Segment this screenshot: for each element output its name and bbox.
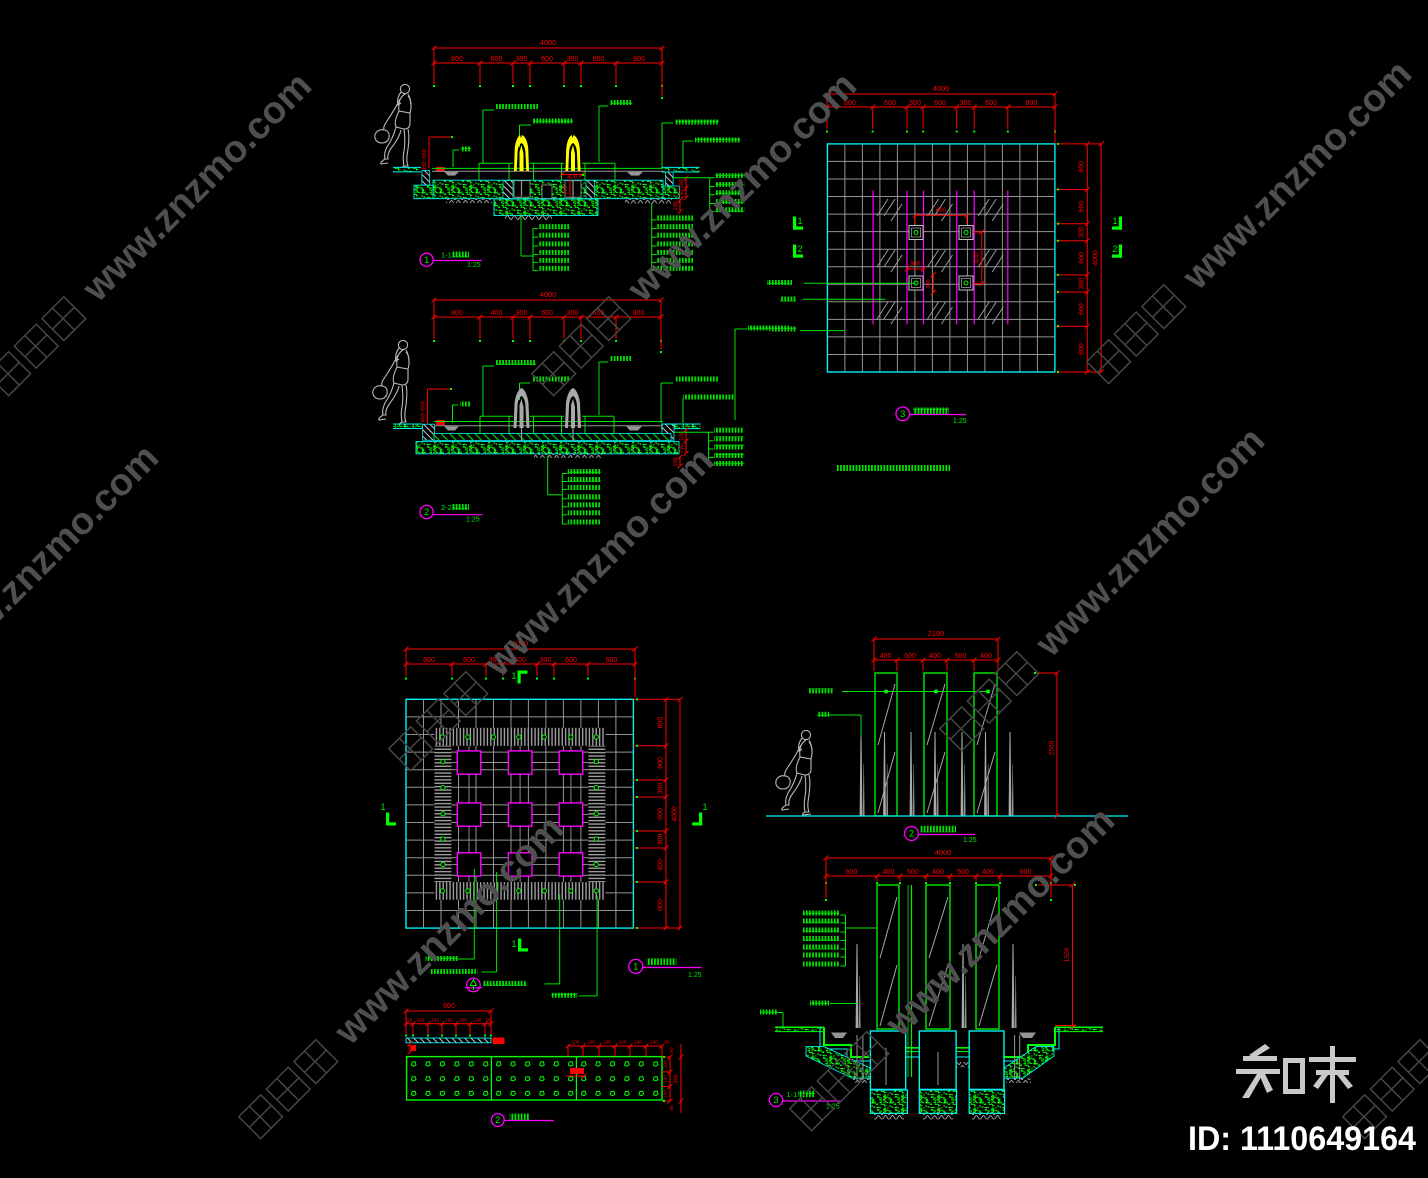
svg-text:100: 100	[603, 1040, 611, 1045]
svg-text:800: 800	[451, 310, 463, 317]
svg-text:450~650: 450~650	[421, 401, 427, 423]
svg-text:300: 300	[516, 310, 528, 317]
svg-text:300: 300	[658, 834, 665, 846]
svg-text:100: 100	[587, 1040, 595, 1045]
svg-text:300: 300	[909, 100, 921, 107]
svg-text:300: 300	[516, 56, 528, 63]
svg-text:4000: 4000	[1093, 250, 1100, 266]
svg-text:600: 600	[934, 100, 946, 107]
svg-text:100: 100	[417, 1018, 425, 1023]
svg-text:600: 600	[658, 808, 665, 820]
svg-text:600: 600	[593, 56, 605, 63]
svg-text:1: 1	[633, 962, 638, 972]
svg-text:1:25: 1:25	[963, 837, 977, 844]
svg-text:800: 800	[451, 56, 463, 63]
svg-text:100: 100	[679, 179, 685, 188]
svg-text:1: 1	[1112, 216, 1117, 226]
svg-text:100: 100	[679, 431, 685, 440]
svg-text:500: 500	[904, 653, 916, 660]
svg-text:2500: 2500	[1049, 740, 1056, 755]
svg-text:2: 2	[797, 244, 802, 254]
svg-text:100: 100	[634, 1040, 642, 1045]
svg-text:1: 1	[797, 216, 802, 226]
svg-text:2: 2	[424, 507, 429, 517]
svg-text:100: 100	[474, 1018, 482, 1023]
svg-text:1: 1	[702, 802, 707, 812]
svg-text:ID: 1110649164: ID: 1110649164	[1188, 1120, 1416, 1158]
svg-text:1:25: 1:25	[688, 972, 702, 979]
svg-text:3: 3	[773, 1095, 778, 1105]
svg-text:400: 400	[980, 653, 992, 660]
svg-text:500: 500	[955, 653, 967, 660]
svg-text:100: 100	[431, 1018, 439, 1023]
svg-text:50: 50	[669, 1047, 675, 1053]
svg-text:50: 50	[407, 1018, 413, 1023]
svg-text:400: 400	[658, 859, 665, 871]
svg-text:100: 100	[572, 1040, 580, 1045]
svg-text:50: 50	[664, 1040, 670, 1045]
svg-text:100: 100	[663, 1075, 669, 1083]
svg-text:4000: 4000	[540, 290, 557, 299]
svg-text:600: 600	[1079, 303, 1086, 315]
svg-text:600: 600	[565, 657, 577, 664]
svg-text:300: 300	[540, 657, 552, 664]
svg-text:600: 600	[658, 757, 665, 769]
svg-text:600: 600	[606, 657, 618, 664]
svg-text:400: 400	[974, 252, 981, 263]
svg-text:400: 400	[932, 869, 944, 876]
svg-text:1:25: 1:25	[466, 517, 480, 524]
svg-text:800: 800	[633, 56, 645, 63]
svg-text:800: 800	[1079, 161, 1086, 173]
svg-text:800: 800	[1026, 100, 1038, 107]
svg-text:600: 600	[423, 657, 435, 664]
svg-text:600: 600	[1079, 252, 1086, 264]
svg-text:300: 300	[910, 261, 921, 268]
svg-text:1-1: 1-1	[441, 251, 452, 260]
svg-text:3: 3	[900, 409, 905, 419]
svg-text:2180: 2180	[928, 629, 945, 638]
svg-text:400: 400	[491, 310, 503, 317]
svg-text:300: 300	[1079, 277, 1086, 289]
svg-text:2: 2	[909, 829, 914, 839]
svg-text:1:25: 1:25	[953, 418, 967, 425]
svg-text:4000: 4000	[935, 848, 952, 857]
svg-text:100: 100	[663, 1090, 669, 1098]
svg-text:400: 400	[883, 869, 895, 876]
svg-text:800: 800	[1079, 343, 1086, 355]
svg-text:1: 1	[380, 802, 385, 812]
svg-text:2: 2	[495, 1115, 500, 1125]
svg-text:100: 100	[650, 1040, 658, 1045]
svg-text:300: 300	[674, 1074, 680, 1083]
svg-text:500: 500	[957, 869, 969, 876]
svg-text:100: 100	[459, 1018, 467, 1023]
svg-text:1: 1	[424, 255, 429, 265]
svg-text:2: 2	[1112, 244, 1117, 254]
svg-text:150: 150	[679, 189, 685, 198]
svg-text:100: 100	[619, 1040, 627, 1045]
svg-text:450~650: 450~650	[422, 149, 428, 171]
svg-text:600: 600	[491, 56, 503, 63]
svg-text:300: 300	[1079, 226, 1086, 238]
svg-text:4000: 4000	[540, 38, 557, 47]
svg-text:300: 300	[567, 310, 579, 317]
svg-text:50: 50	[485, 1018, 491, 1023]
svg-text:600: 600	[658, 899, 665, 911]
svg-text:600: 600	[1079, 201, 1086, 213]
svg-text:300: 300	[563, 185, 569, 194]
svg-text:600: 600	[884, 100, 896, 107]
svg-text:50: 50	[669, 1105, 675, 1111]
svg-text:4000: 4000	[933, 84, 950, 93]
svg-text:4000: 4000	[672, 806, 679, 822]
svg-text:1500: 1500	[1064, 947, 1071, 962]
svg-text:300: 300	[926, 279, 932, 288]
svg-text:600: 600	[443, 1003, 455, 1010]
svg-text:300: 300	[567, 56, 579, 63]
svg-text:600: 600	[936, 207, 947, 214]
svg-text:300: 300	[960, 100, 972, 107]
svg-text:300: 300	[658, 783, 665, 795]
svg-text:300: 300	[567, 174, 578, 181]
svg-text:1:25: 1:25	[467, 262, 481, 269]
svg-text:2-2: 2-2	[441, 503, 452, 512]
svg-text:400: 400	[880, 653, 892, 660]
svg-text:600: 600	[541, 310, 553, 317]
svg-text:400: 400	[929, 653, 941, 660]
svg-text:500: 500	[907, 869, 919, 876]
svg-text:100: 100	[673, 201, 679, 210]
svg-text:600: 600	[846, 869, 858, 876]
svg-text:1: 1	[511, 939, 516, 949]
svg-text:100: 100	[445, 1018, 453, 1023]
svg-text:1-1: 1-1	[787, 1090, 798, 1099]
svg-text:600: 600	[985, 100, 997, 107]
svg-text:600: 600	[541, 56, 553, 63]
svg-text:100: 100	[663, 1060, 669, 1068]
svg-text:400: 400	[982, 869, 994, 876]
svg-text:600: 600	[658, 717, 665, 729]
